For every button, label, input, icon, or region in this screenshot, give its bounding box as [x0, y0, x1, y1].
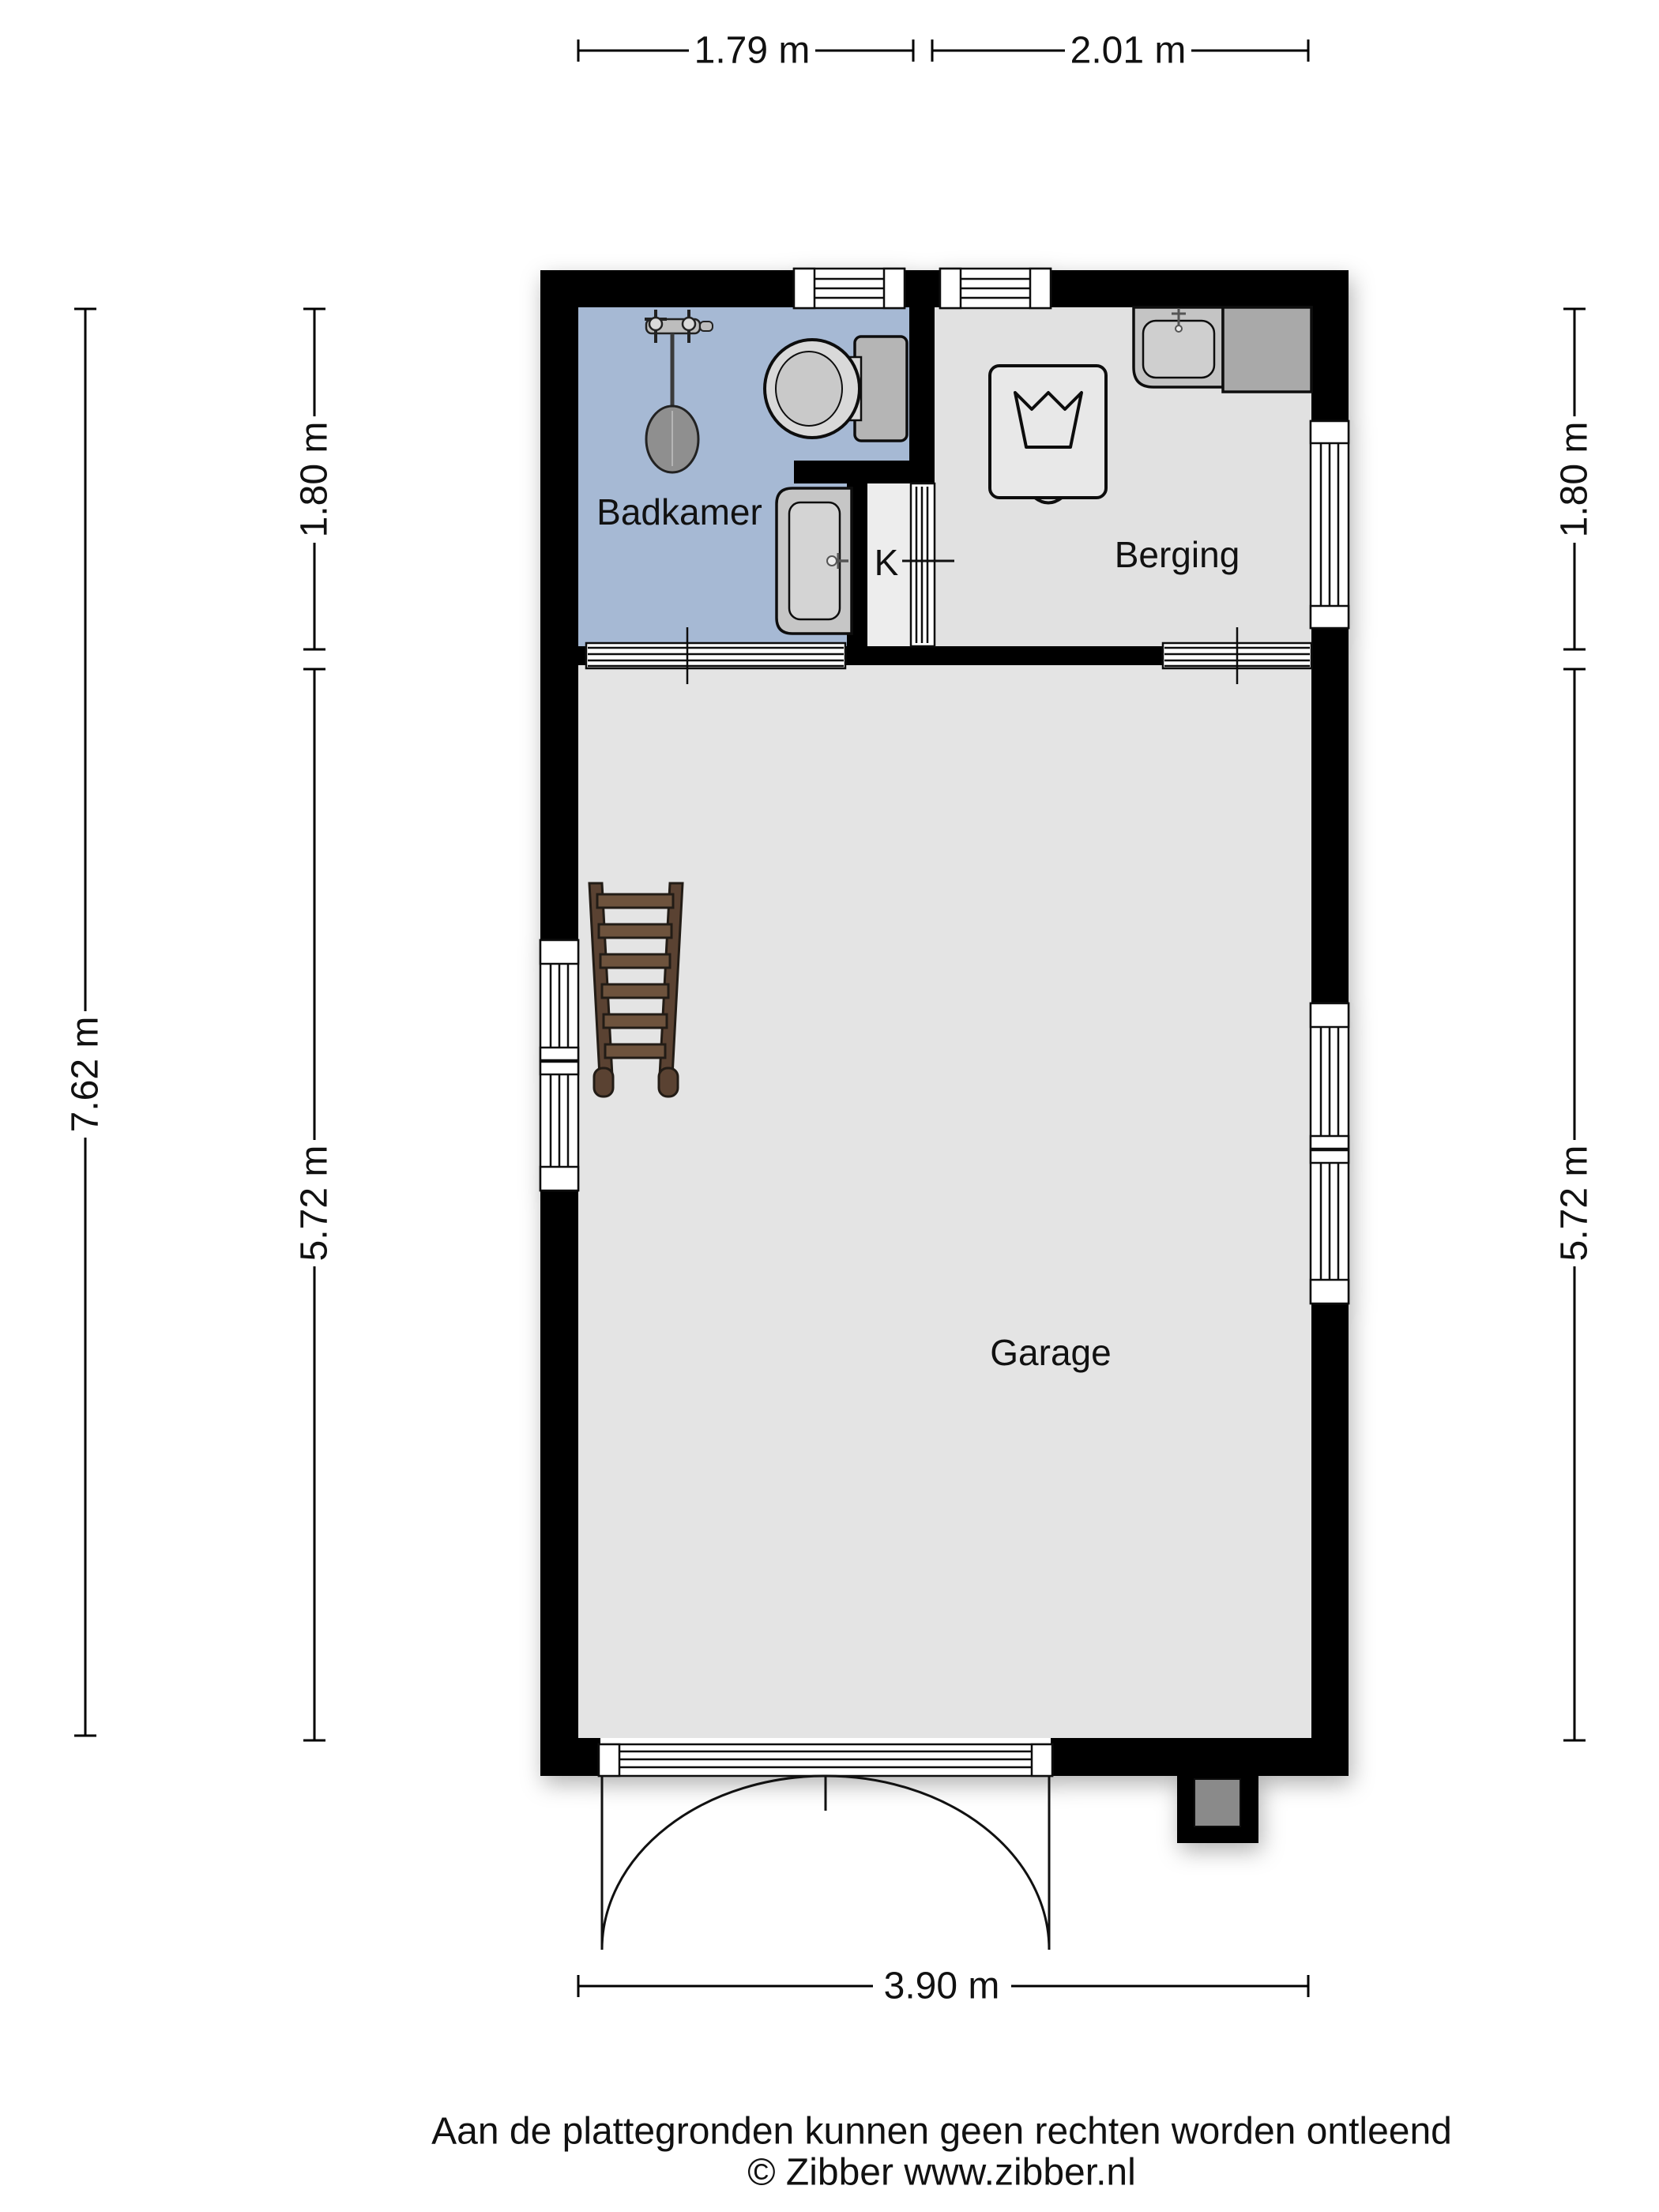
dimension-top-2-label: 2.01 m	[1070, 30, 1187, 72]
footer-disclaimer: Aan de plattegronden kunnen geen rechten…	[431, 2111, 1452, 2153]
dimension-top-1: 1.79 m	[578, 30, 913, 72]
dimension-left-inner-2-label: 5.72 m	[294, 1145, 336, 1262]
dimension-left-inner-1: 1.80 m	[294, 309, 336, 649]
washbasin-icon	[777, 488, 852, 634]
floor-plan: 1.79 m 2.01 m 7.62 m 1.80 m	[0, 0, 1659, 2212]
room-berging-label: Berging	[1115, 534, 1240, 575]
window-right-garage	[1311, 1003, 1349, 1303]
dimension-bottom-label: 3.90 m	[884, 1966, 1000, 2007]
window-right-berging	[1311, 421, 1349, 628]
chimney-appendage	[1177, 1776, 1258, 1843]
dimension-left-outer: 7.62 m	[65, 309, 107, 1736]
garage-door-swing	[602, 1776, 1049, 1950]
room-k-label: K	[875, 542, 899, 583]
dimension-bottom: 3.90 m	[578, 1966, 1308, 2007]
footer-credit: © Zibber www.zibber.nl	[747, 2152, 1136, 2194]
dimension-right-1: 1.80 m	[1554, 309, 1596, 649]
garage-door-threshold	[599, 1744, 1052, 1776]
counter-icon	[1223, 307, 1311, 392]
dimension-right-2-label: 5.72 m	[1554, 1145, 1596, 1262]
dimension-top-1-label: 1.79 m	[694, 30, 811, 72]
dimension-left-inner-1-label: 1.80 m	[294, 422, 336, 538]
window-top-berging	[940, 269, 1051, 308]
room-badkamer-label: Badkamer	[596, 491, 762, 532]
room-garage-label: Garage	[990, 1332, 1111, 1373]
toilet-icon	[765, 337, 907, 441]
dimension-left-inner-2: 5.72 m	[294, 669, 336, 1740]
k-closet-door	[911, 483, 935, 646]
dimension-right-2: 5.72 m	[1554, 669, 1596, 1740]
dimension-top-2: 2.01 m	[932, 30, 1308, 72]
dimension-right-1-label: 1.80 m	[1554, 422, 1596, 538]
room-garage-floor	[578, 665, 1311, 1738]
dimension-left-outer-label: 7.62 m	[65, 1017, 107, 1133]
window-left-garage	[540, 940, 578, 1191]
washing-machine-icon	[990, 366, 1106, 503]
floor-plan-page: 1.79 m 2.01 m 7.62 m 1.80 m	[0, 0, 1659, 2212]
window-top-badkamer	[794, 269, 905, 308]
berging-left-wall	[909, 307, 935, 483]
kitchen-sink-icon	[1134, 307, 1223, 387]
